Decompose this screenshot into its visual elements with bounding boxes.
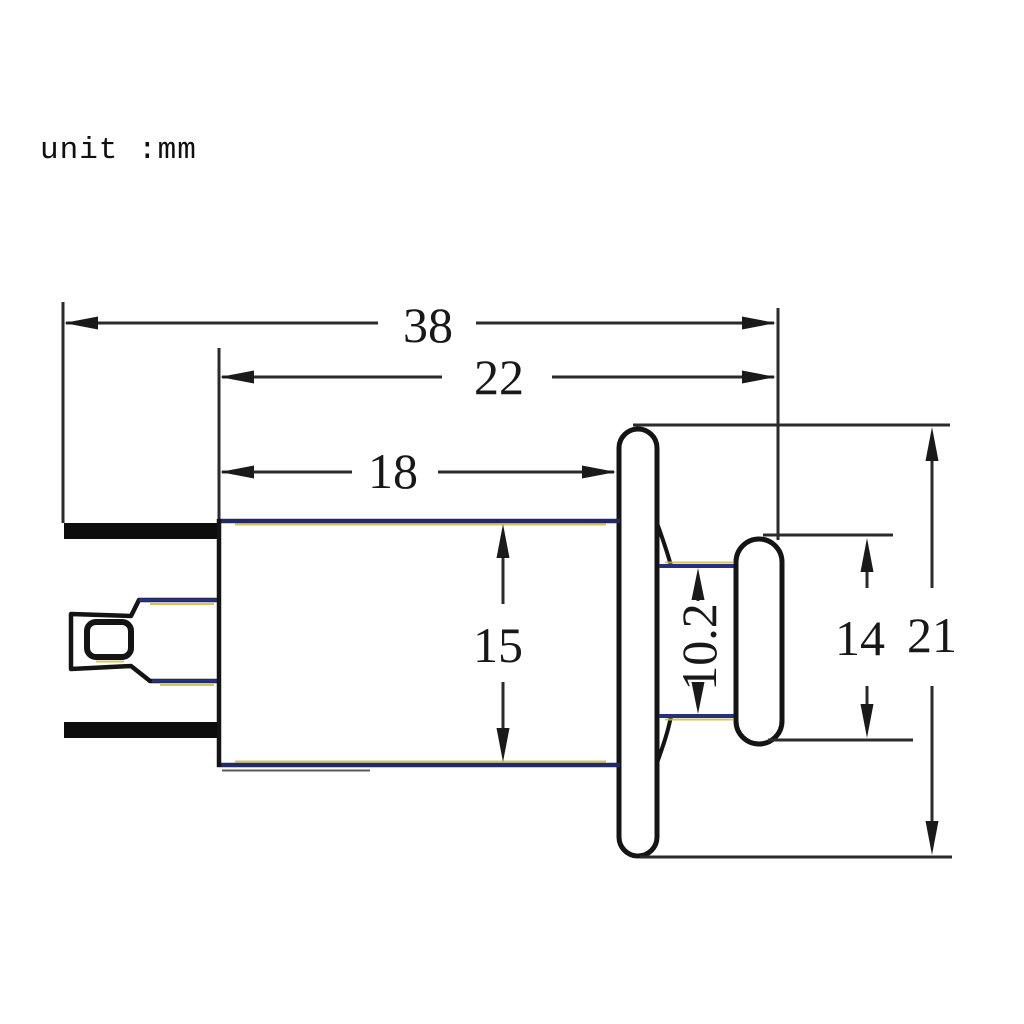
arrowhead-up-icon <box>497 524 510 558</box>
cap-shape <box>736 539 782 744</box>
technical-drawing: unit :mm <box>0 0 1024 1024</box>
flange-shape <box>619 429 657 856</box>
arrowhead-down-icon <box>926 821 939 855</box>
dim-body-diameter: 15 <box>473 524 523 762</box>
dim-body-to-cap: 22 <box>220 349 776 405</box>
arrowhead-left-icon <box>64 317 98 330</box>
unit-note-label: unit :mm <box>40 133 197 168</box>
dim-body-to-cap-value: 22 <box>474 349 524 405</box>
dim-total-length: 38 <box>64 297 776 353</box>
dim-body-length: 18 <box>220 443 616 499</box>
dim-flange-diameter: 21 <box>907 427 957 855</box>
dim-flange-diameter-value: 21 <box>907 607 957 663</box>
dim-cap-diameter-value: 14 <box>835 610 885 666</box>
arrowhead-right-icon <box>742 371 776 384</box>
arrowhead-right-icon <box>742 317 776 330</box>
drawing-page: unit :mm <box>0 0 1024 1024</box>
dim-cap-diameter: 14 <box>835 538 885 738</box>
dim-neck-diameter-value: 10.2 <box>671 603 727 691</box>
arrowhead-down-icon <box>861 704 874 738</box>
arrowhead-up-icon <box>861 538 874 572</box>
arrowhead-right-icon <box>582 466 616 479</box>
arrowhead-up-icon <box>926 427 939 461</box>
terminal-bar-bottom <box>64 722 218 738</box>
dim-total-length-value: 38 <box>403 297 453 353</box>
dim-body-diameter-value: 15 <box>473 617 523 673</box>
dim-neck-diameter: 10.2 <box>671 568 727 714</box>
arrowhead-left-icon <box>220 371 254 384</box>
arrowhead-up-icon <box>692 568 705 600</box>
terminal-bar-top <box>64 523 218 539</box>
dim-body-length-value: 18 <box>368 443 418 499</box>
arrowhead-down-icon <box>497 728 510 762</box>
terminal-middle-shape <box>71 600 219 681</box>
arrowhead-left-icon <box>220 466 254 479</box>
